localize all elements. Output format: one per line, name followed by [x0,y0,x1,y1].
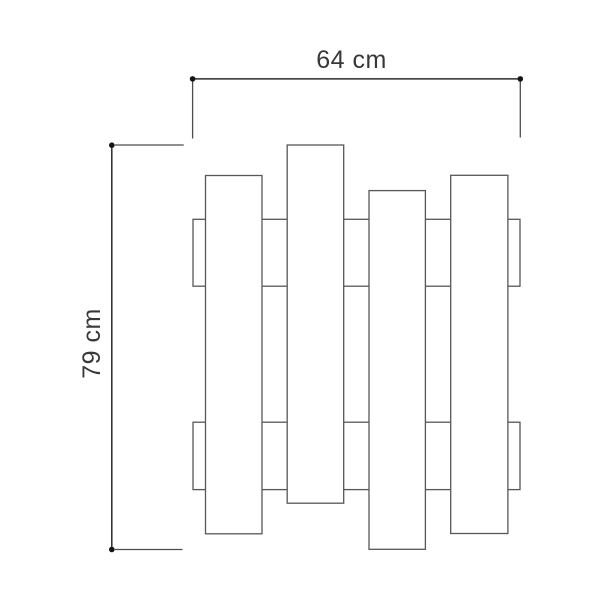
svg-text:79 cm: 79 cm [78,308,106,379]
svg-text:64 cm: 64 cm [316,46,387,74]
